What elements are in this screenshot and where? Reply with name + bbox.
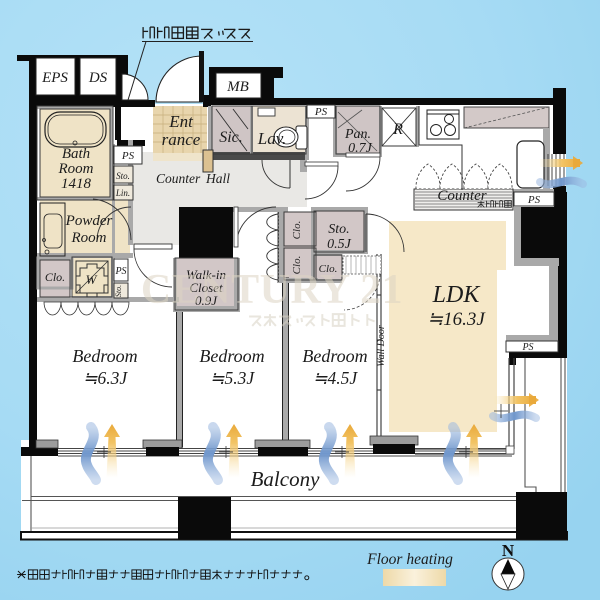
svg-text:Bath: Bath — [62, 146, 90, 162]
svg-text:PS: PS — [114, 266, 126, 277]
svg-text:EPS: EPS — [41, 70, 68, 86]
svg-text:PS: PS — [121, 150, 135, 162]
svg-text:Room: Room — [58, 161, 94, 177]
svg-text:Sic.: Sic. — [219, 129, 243, 146]
svg-text:Lin.: Lin. — [115, 188, 130, 198]
svg-text:Pan.: Pan. — [344, 127, 371, 142]
svg-text:PS: PS — [314, 106, 328, 118]
svg-text:Powder: Powder — [65, 213, 113, 229]
svg-text:Counter: Counter — [156, 171, 201, 186]
svg-text:DS: DS — [88, 70, 108, 86]
svg-text:Clo.: Clo. — [291, 221, 303, 240]
svg-text:0.7J: 0.7J — [348, 141, 373, 156]
svg-text:rance: rance — [162, 130, 201, 149]
svg-text:Sto.: Sto. — [114, 285, 123, 297]
svg-text:≒6.3J: ≒6.3J — [83, 368, 129, 388]
svg-text:Counter: Counter — [437, 188, 486, 204]
svg-text:Ent: Ent — [168, 112, 194, 131]
svg-text:Room: Room — [71, 230, 107, 246]
svg-text:CENTURY 21: CENTURY 21 — [141, 267, 403, 313]
svg-text:≒5.3J: ≒5.3J — [210, 368, 256, 388]
svg-text:Bedroom: Bedroom — [302, 346, 367, 366]
svg-text:LDK: LDK — [432, 282, 482, 308]
svg-text:N: N — [502, 541, 515, 560]
svg-text:≒16.3J: ≒16.3J — [427, 309, 486, 330]
svg-text:Floor heating: Floor heating — [366, 551, 453, 568]
svg-text:1418: 1418 — [61, 176, 92, 192]
svg-text:Bedroom: Bedroom — [199, 346, 264, 366]
svg-text:Lav.: Lav. — [257, 129, 287, 148]
svg-text:Sto.: Sto. — [116, 171, 130, 181]
svg-text:R: R — [392, 121, 403, 138]
svg-text:Hall: Hall — [205, 171, 230, 186]
svg-text:Sto.: Sto. — [328, 222, 349, 237]
svg-text:Clo.: Clo. — [45, 270, 65, 284]
svg-text:PS: PS — [521, 342, 533, 353]
svg-text:W: W — [86, 272, 98, 287]
svg-text:Bedroom: Bedroom — [72, 346, 137, 366]
svg-text:≒4.5J: ≒4.5J — [313, 368, 359, 388]
svg-text:0.5J: 0.5J — [327, 237, 352, 252]
svg-text:MB: MB — [226, 79, 249, 95]
svg-text:PS: PS — [527, 194, 541, 206]
svg-text:Wall Door: Wall Door — [376, 325, 387, 367]
svg-text:Balcony: Balcony — [251, 467, 320, 491]
